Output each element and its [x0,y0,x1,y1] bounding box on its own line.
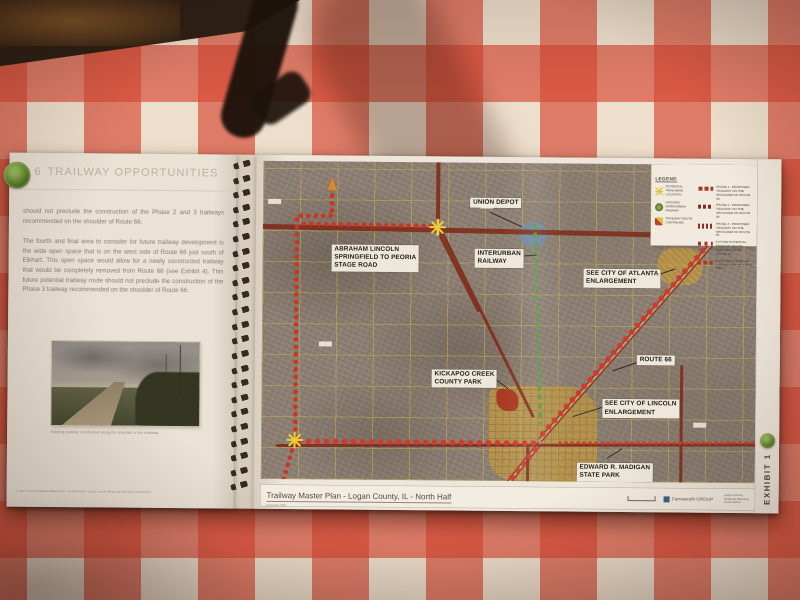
binding-coil [231,393,249,403]
route-direction-arrow-icon [327,177,337,191]
binding-coil [232,233,250,243]
map-legend: LEGEND POTENTIAL TRAILHEAD LOCATIONHISTO… [651,164,758,246]
page-footer: Logan County Trailway Master Plan - Fina… [17,489,224,495]
legend-line-swatch [699,187,714,191]
wood-object [0,0,180,46]
kickapoo-creek-park-area [496,389,518,411]
legend-line-swatch [698,260,713,264]
legend-label: HISTORIC INTERURBAN RAILWAY [666,201,695,213]
binding-coil [230,466,248,476]
binding-coil [230,452,248,462]
binding-coil [233,203,251,213]
map-label: INTERURBAN RAILWAY [475,249,523,268]
legend-label: POTENTIAL TRAILHEAD LOCATION [666,185,695,197]
binding-coil [232,218,250,228]
binding-coil [230,481,248,491]
map-date: December 2011 [266,502,619,509]
map-label: ROUTE 66 [637,355,674,366]
road-name-chip [319,341,332,346]
legend-line-swatch [699,205,714,209]
map-label: KICKAPOO CREEK COUNTY PARK [432,369,497,388]
exhibit-strip: EXHIBIT 1 [754,159,781,513]
legend-label: TRAILWAY ROUTE CONTINUES [665,218,694,226]
trailway-dotted-route [291,215,300,438]
map-label: SEE CITY OF ATLANTA ENLARGEMENT [584,269,661,288]
label-leader-line [490,212,522,227]
label-leader-line [612,361,640,371]
binding-coil [231,437,249,447]
binding-coil [232,276,250,286]
binding-coil [233,174,251,184]
map-label: SEE CITY OF LINCOLN ENLARGEMENT [602,399,679,418]
route-direction-arrow-icon [489,482,504,483]
trailway-dotted-route [297,212,335,219]
binding-coil [232,262,250,272]
body-text: should not preclude the construction of … [22,207,224,308]
legend-label: PHASE 1 - PROPOSED TRAILWAY ON THE SHOUL… [716,186,753,202]
interurban-logo-icon [655,203,663,211]
legend-label: FUTURE POTENTIAL TRAILWAY ROUTE REMOVED … [716,241,753,257]
binding-coil [231,379,249,389]
asterisk-icon [655,187,663,195]
binding-coil [232,320,250,330]
legend-line-swatch [698,224,713,229]
exhibit-label: EXHIBIT 1 [762,453,771,505]
road-line [679,365,683,483]
paragraph-2: The fourth and final area to consider fo… [22,237,223,296]
legend-label: PHASE 3 - PROPOSED TRAILWAY ON THE SHOUL… [716,223,753,239]
photo-caption: Existing trailway constructed along the … [51,430,220,435]
page-title: 6TRAILWAY OPPORTUNITIES [34,166,218,180]
legend-row: PHASE 2 - PROPOSED TRAILWAY ON THE SHOUL… [698,204,753,220]
legend-title: LEGEND [655,176,677,182]
legend-row: PHASE 1 - PROPOSED TRAILWAY ON THE SHOUL… [699,186,754,202]
map-label: EDWARD R. MADIGAN STATE PARK [577,463,653,482]
legend-row: HISTORIC INTERURBAN RAILWAY [655,201,695,213]
firm-logo-icon [663,496,669,502]
firm-branding: Farnsworth GROUP [663,496,713,502]
trailway-plan-logo-icon-small [760,433,775,448]
binding-coil [232,247,250,257]
trailway-dotted-route [557,441,757,446]
binding-coil [231,408,249,418]
map-page: LEGEND POTENTIAL TRAILHEAD LOCATIONHISTO… [253,155,781,514]
trailway-map: LEGEND POTENTIAL TRAILHEAD LOCATIONHISTO… [261,161,758,483]
legend-line-items: PHASE 1 - PROPOSED TRAILWAY ON THE SHOUL… [698,186,753,275]
left-page: 6TRAILWAY OPPORTUNITIES should not precl… [6,153,236,509]
trailhead-asterisk-icon [286,431,303,448]
photo-trees [136,372,200,426]
agency-name: Logan County Regional Planning Commissio… [724,494,748,505]
legend-line-swatch [698,242,713,246]
legend-row: POTENTIAL TRAILHEAD LOCATION [655,185,695,197]
road-name-chip [693,422,706,427]
report-document: 6TRAILWAY OPPORTUNITIES should not precl… [6,153,781,514]
legend-row: PHASE 3 - PROPOSED TRAILWAY ON THE SHOUL… [698,223,753,239]
trailway-plan-logo-icon [3,162,30,189]
label-leader-line [606,448,621,458]
map-label: UNION DEPOT [471,198,522,209]
legend-row: TRAILWAY ROUTE CONTINUES [655,217,695,225]
legend-row: PROPOSED TRAILWAY CONNECTION TO STATE PA… [698,259,753,271]
binding-coil [232,291,250,301]
binding-coil [231,349,249,359]
binding-coil [233,189,251,199]
binding-coil [231,364,249,374]
photograph-scene: 6TRAILWAY OPPORTUNITIES should not precl… [0,0,800,600]
trailhead-asterisk-icon [429,218,446,235]
paragraph-1: should not preclude the construction of … [23,207,224,228]
binding-coil [231,335,249,345]
section-number: 6 [34,166,41,178]
legend-point-items: POTENTIAL TRAILHEAD LOCATIONHISTORIC INT… [655,185,695,274]
title-rule [15,189,230,192]
legend-label: PROPOSED TRAILWAY CONNECTION TO STATE PA… [716,260,753,272]
map-label: ABRAHAM LINCOLN SPRINGFIELD TO PEORIA ST… [332,244,419,272]
trailway-photo [51,341,200,426]
binding-coil [233,160,251,170]
legend-label: PHASE 2 - PROPOSED TRAILWAY ON THE SHOUL… [716,204,753,220]
section-title: TRAILWAY OPPORTUNITIES [48,166,219,179]
road-name-chip [268,199,281,204]
binding-coil [231,422,249,432]
spiral-binding [226,160,263,504]
map-title: Trailway Master Plan - Logan County, IL … [267,490,452,503]
legend-row: FUTURE POTENTIAL TRAILWAY ROUTE REMOVED … [698,241,753,257]
firm-name: Farnsworth GROUP [672,496,713,501]
direction-marker-icon [655,217,663,225]
binding-coil [232,306,250,316]
scale-bar [627,496,655,501]
map-title-bar: Trailway Master Plan - Logan County, IL … [260,485,754,510]
